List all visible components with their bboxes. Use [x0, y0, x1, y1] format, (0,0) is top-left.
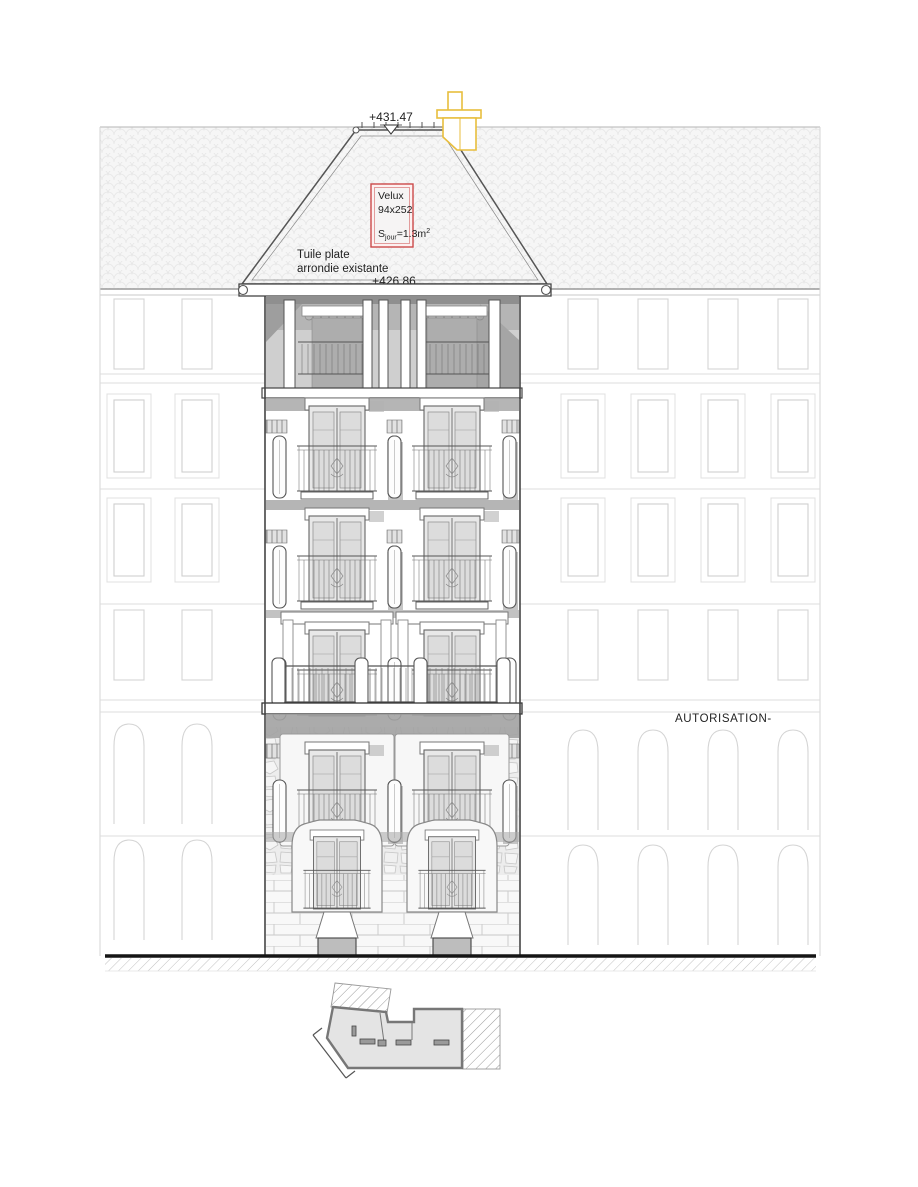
velux-name: Velux — [378, 190, 404, 202]
plan-neighbor-hatch-right — [463, 1009, 500, 1069]
ridge-level-label: +431.47 — [369, 110, 413, 124]
ground-door-block — [433, 938, 471, 956]
neighbor-facade-left — [107, 299, 219, 940]
balcony-slab — [262, 703, 522, 714]
site-plan — [313, 983, 500, 1078]
roof-note-line1: Tuile plate — [297, 249, 350, 261]
ground-line — [105, 956, 816, 971]
tower-facade — [239, 284, 552, 956]
velux-size: 94x252 — [378, 204, 413, 216]
elevation-drawing: +431.47 Velux 94x252 Sjour=1.3m2 Tuile p… — [0, 0, 918, 1187]
eaves-cornice — [239, 284, 551, 296]
loggia-floor — [262, 296, 522, 398]
ground-door-block — [318, 938, 356, 956]
elevation-sheet: +431.47 Velux 94x252 Sjour=1.3m2 Tuile p… — [0, 0, 918, 1187]
autorisation-stamp: AUTORISATION- — [675, 713, 772, 725]
plan-footprint — [327, 1007, 462, 1068]
neighbor-facade-right — [561, 299, 815, 945]
loggia-floor-slab — [262, 388, 522, 398]
